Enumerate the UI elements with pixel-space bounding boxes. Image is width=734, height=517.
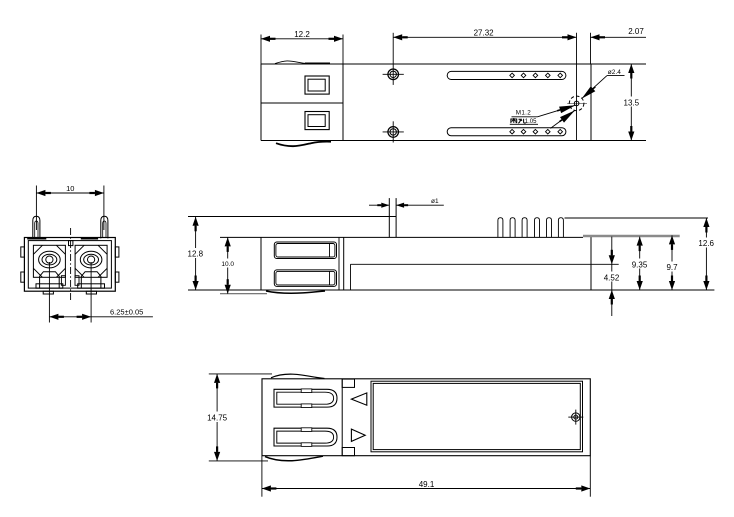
svg-text:12.2: 12.2: [294, 30, 310, 39]
svg-text:M1.2: M1.2: [516, 109, 531, 116]
svg-text:10: 10: [66, 184, 74, 193]
svg-text:4.52: 4.52: [604, 273, 620, 282]
svg-text:9.7: 9.7: [666, 263, 678, 272]
svg-text:10.0: 10.0: [221, 261, 234, 268]
svg-text:13.5: 13.5: [624, 98, 640, 107]
svg-text:ø2.4: ø2.4: [608, 69, 621, 76]
svg-text:ø1: ø1: [431, 198, 439, 205]
svg-text:14.75: 14.75: [207, 414, 228, 423]
svg-text:9.35: 9.35: [632, 260, 648, 269]
svg-text:6.25±0.05: 6.25±0.05: [110, 308, 143, 317]
svg-text:49.1: 49.1: [419, 480, 435, 489]
svg-text:2.07: 2.07: [628, 27, 644, 36]
svg-text:12.8: 12.8: [188, 250, 204, 259]
svg-text:27.32: 27.32: [474, 28, 495, 37]
svg-text:12.6: 12.6: [698, 239, 714, 248]
